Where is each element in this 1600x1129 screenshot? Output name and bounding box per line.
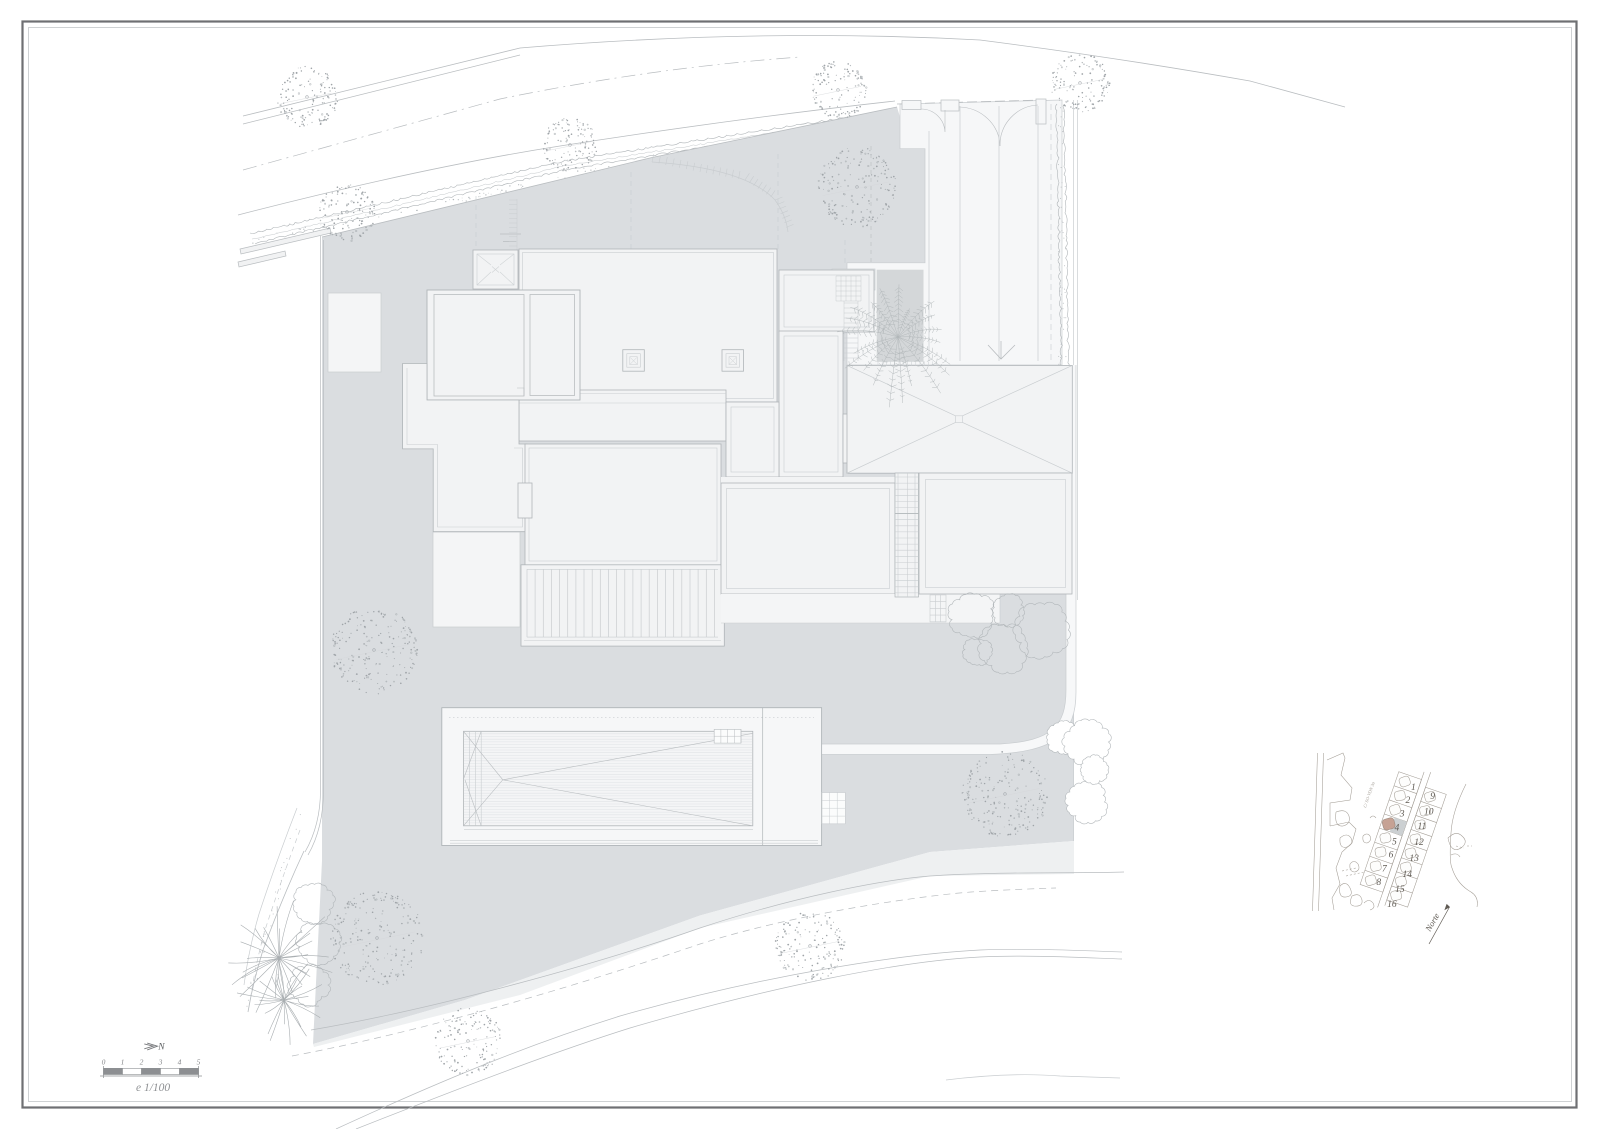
svg-text:3: 3 bbox=[1399, 810, 1405, 820]
svg-text:13: 13 bbox=[1409, 854, 1419, 864]
svg-text:1: 1 bbox=[1411, 783, 1416, 793]
svg-text:16: 16 bbox=[1387, 900, 1397, 910]
svg-text:N: N bbox=[157, 1043, 165, 1053]
svg-text:4: 4 bbox=[1395, 824, 1400, 834]
svg-text:0: 0 bbox=[102, 1058, 106, 1067]
svg-text:15: 15 bbox=[1395, 885, 1405, 895]
svg-text:5: 5 bbox=[1392, 838, 1397, 848]
svg-text:12: 12 bbox=[1414, 838, 1424, 848]
svg-text:10: 10 bbox=[1424, 808, 1434, 818]
svg-text:8: 8 bbox=[1376, 878, 1381, 888]
svg-text:4: 4 bbox=[178, 1058, 182, 1067]
svg-text:3: 3 bbox=[158, 1058, 163, 1067]
svg-text:14: 14 bbox=[1403, 870, 1413, 880]
svg-text:1: 1 bbox=[121, 1058, 125, 1067]
svg-text:11: 11 bbox=[1418, 822, 1427, 832]
svg-text:e 1/100: e 1/100 bbox=[136, 1082, 170, 1094]
svg-text:2: 2 bbox=[140, 1058, 144, 1067]
svg-text:9: 9 bbox=[1430, 792, 1435, 802]
svg-text:2: 2 bbox=[1406, 796, 1411, 806]
svg-text:6: 6 bbox=[1389, 851, 1394, 861]
svg-text:5: 5 bbox=[197, 1058, 201, 1067]
